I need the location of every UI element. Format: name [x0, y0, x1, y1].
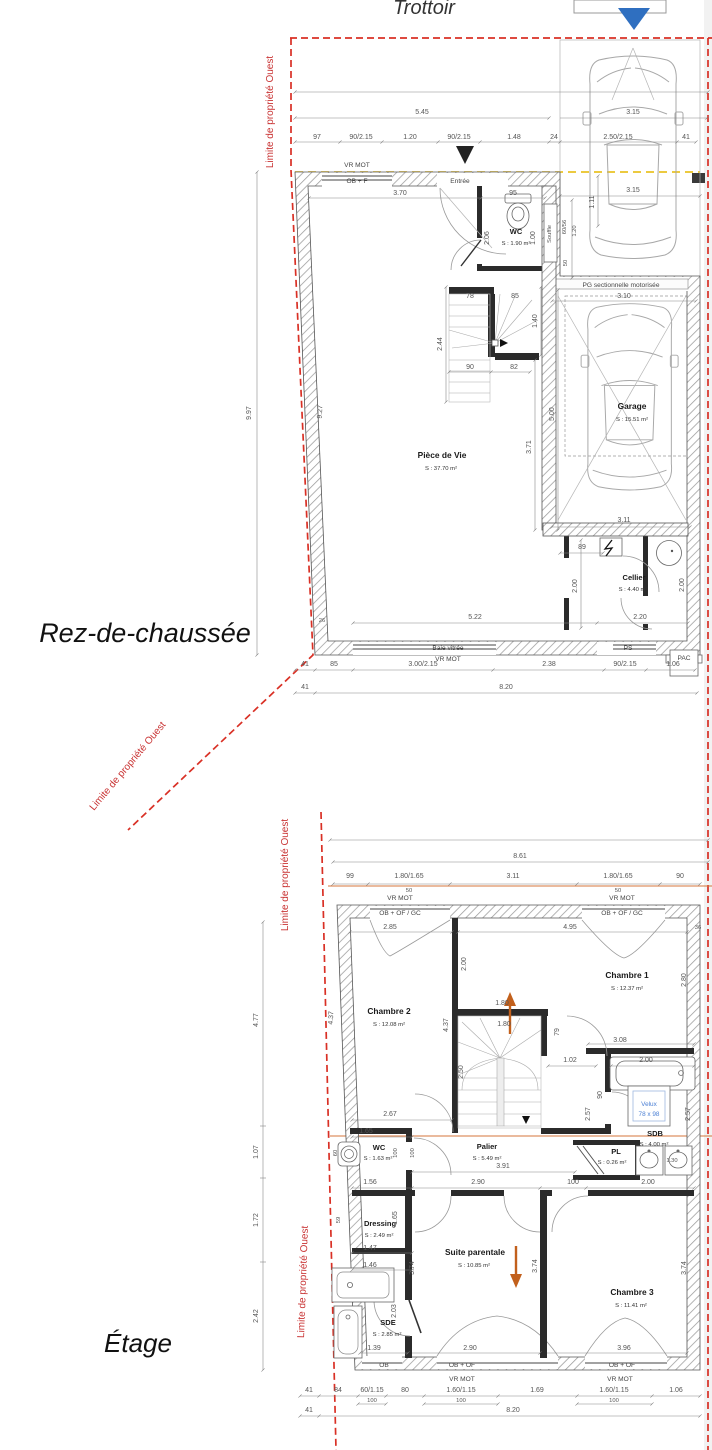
- entry-label: Entrée: [450, 178, 470, 185]
- dim-label: 4.95: [563, 924, 577, 931]
- dim-label: 2.00: [461, 957, 468, 971]
- room-name: WC: [373, 1143, 386, 1152]
- dim-label: 90/2.15: [447, 134, 470, 141]
- bay-window-label: Baie vitrée: [432, 645, 463, 652]
- dim-label: 85: [511, 293, 519, 300]
- dim-label: 3.15: [626, 187, 640, 194]
- velux-label: Velux: [641, 1101, 657, 1108]
- room-area: S : 2.85 m²: [373, 1332, 402, 1338]
- dim-label: 2.38: [542, 661, 556, 668]
- room-area: S : 12.08 m²: [373, 1022, 405, 1028]
- dim-label: 1.80: [497, 1021, 511, 1028]
- dim-label: 85: [330, 661, 338, 668]
- room-area: S : 4.40 m²: [619, 587, 648, 593]
- dim-label: 1.30: [666, 1158, 677, 1164]
- entrance-arrow-icon: [618, 8, 650, 30]
- dim-label: 9.97: [246, 406, 253, 420]
- dim-label: 60/1.15: [360, 1387, 383, 1394]
- dim-label: 5.22: [468, 614, 482, 621]
- dim-label: 2.00: [572, 579, 579, 593]
- dim-label: 1.56: [363, 1179, 377, 1186]
- dim-label: 2.44: [437, 337, 444, 351]
- floor-plan-document: Limite de propriété Ouest Limite de prop…: [0, 0, 712, 1450]
- dim-label: 90/2.15: [349, 134, 372, 141]
- shutter-label: VR MOT: [344, 162, 370, 169]
- room-name: PL: [611, 1147, 621, 1156]
- dim-label: 41: [301, 661, 309, 668]
- property-limit-label: Limite de propriété Ouest: [265, 56, 276, 169]
- window-label: OB + OF: [449, 1362, 475, 1369]
- dim-label: 41: [301, 684, 309, 691]
- dim-label: 1.02: [563, 1057, 577, 1064]
- dim-label: 3.74: [681, 1261, 688, 1275]
- dim-label: 89: [578, 544, 586, 551]
- dim-label: 60: [333, 1150, 339, 1156]
- room-area: S : 1.90 m²: [502, 241, 531, 247]
- property-limit-label: Limite de propriété Ouest: [280, 819, 291, 932]
- room-area: S : 5.49 m²: [473, 1156, 502, 1162]
- water-heater: [657, 541, 682, 566]
- dim-label: 2.42: [253, 1309, 260, 1323]
- dim-label: 97: [313, 134, 321, 141]
- dim-label: 3.91: [496, 1163, 510, 1170]
- entry-opening: [437, 173, 508, 187]
- sidewalk-label: Trottoir: [393, 0, 456, 19]
- room-name: Pièce de Vie: [418, 450, 467, 460]
- room-name: SDB: [647, 1129, 663, 1138]
- legend-box: [574, 0, 666, 13]
- dim-label: 41: [305, 1407, 313, 1414]
- dim-label: 1.72: [253, 1213, 260, 1227]
- room-name: Palier: [477, 1142, 498, 1151]
- room-name: Garage: [618, 401, 647, 411]
- room-area: S : 10.85 m²: [458, 1263, 490, 1269]
- dim-label: 100: [367, 1398, 377, 1404]
- utility-box: [692, 173, 705, 183]
- dim-label: 2.67: [383, 1111, 397, 1118]
- room-name: Chambre 3: [610, 1287, 654, 1297]
- dim-label: 3.11: [617, 517, 630, 524]
- dim-label: 4.77: [253, 1013, 260, 1027]
- door-direction-icon: [456, 146, 474, 164]
- dim-label: 3.71: [526, 440, 533, 454]
- dim-label: 1.80/1.65: [603, 873, 632, 880]
- dim-label: 82: [510, 364, 518, 371]
- service-door-opening: [597, 642, 613, 655]
- dim-label: 3.11: [506, 873, 519, 880]
- dim-label: 2.20: [633, 614, 647, 621]
- dim-label: 1.69: [530, 1387, 544, 1394]
- floor-title: Étage: [104, 1328, 172, 1358]
- dim-label: 2.57: [685, 1107, 692, 1121]
- dim-label: 5.45: [415, 109, 429, 116]
- stairs-down-arrow: [510, 1246, 522, 1288]
- dim-label: 2.00: [639, 1057, 653, 1064]
- dim-label: 1.47: [363, 1245, 377, 1252]
- dim-label: 4.37: [443, 1018, 450, 1032]
- dim-label: 100: [609, 1398, 619, 1404]
- dim-label: 90: [597, 1091, 604, 1099]
- dim-label: 84: [334, 1387, 342, 1394]
- dim-label: 59: [336, 1217, 342, 1223]
- window-label: OB: [379, 1362, 389, 1369]
- dim-label: 60/56: [562, 220, 568, 235]
- service-door-label: PS: [624, 645, 633, 652]
- dim-label: 1.60/1.15: [599, 1387, 628, 1394]
- garage-parking-zone: [565, 296, 688, 456]
- room-name: Cellier: [623, 573, 646, 582]
- driveway: [560, 40, 700, 278]
- dim-label: 95: [509, 190, 517, 197]
- dim-label: 8.61: [513, 853, 527, 860]
- dim-label: 1.80/1.65: [394, 873, 423, 880]
- dim-label: 8.20: [506, 1407, 520, 1414]
- dim-label: 2.85: [383, 924, 397, 931]
- dim-label: 1.07: [253, 1145, 260, 1159]
- dim-label: 90: [676, 873, 684, 880]
- dim-label: 8.20: [499, 684, 513, 691]
- dim-label: 1.60/1.15: [446, 1387, 475, 1394]
- property-limit-label: Limite de propriété Ouest: [88, 720, 169, 813]
- dim-label: 9.27: [317, 405, 325, 419]
- dim-label: 2.06: [484, 231, 491, 245]
- window-opening: [613, 642, 656, 655]
- room-area: S : 4.00 m²: [640, 1142, 669, 1148]
- dim-label: 1.40: [532, 314, 539, 328]
- room-area: S : 12.37 m²: [611, 986, 643, 992]
- dim-label: 2.57: [585, 1107, 592, 1121]
- dim-label: 2.80: [681, 973, 688, 987]
- dim-label: 1.80: [495, 1000, 509, 1007]
- dim-label: 80: [401, 1387, 409, 1394]
- dim-label: 2.00: [679, 578, 686, 592]
- dim-label: 2.50/2.15: [603, 134, 632, 141]
- shutter-label: VR MOT: [435, 656, 461, 663]
- room-area: S : 37.70 m²: [425, 466, 457, 472]
- dim-label: 1.48: [507, 134, 521, 141]
- window-label: OB + OF / GC: [379, 910, 421, 917]
- shutter-label: VR MOT: [609, 895, 635, 902]
- room-area: S : 2.49 m²: [365, 1233, 394, 1239]
- dim-label: 3.15: [626, 109, 640, 116]
- garage-rear-wall: [543, 523, 688, 536]
- floor-plan-drawing: Limite de propriété Ouest Limite de prop…: [0, 0, 712, 1450]
- dim-label: 78: [466, 293, 474, 300]
- dim-label: 3.08: [613, 1037, 627, 1044]
- dim-label: 1.11: [589, 195, 596, 208]
- dim-label: 41: [682, 134, 690, 141]
- room-name: SDE: [380, 1318, 395, 1327]
- property-limit-label: Limite de propriété Ouest: [296, 1225, 311, 1338]
- dim-label: 2.50: [458, 1065, 465, 1079]
- room-name: Chambre 2: [367, 1006, 411, 1016]
- dim-label: 1.65: [359, 1128, 373, 1135]
- dim-label: 100: [456, 1398, 466, 1404]
- dim-label: 1.20: [403, 134, 417, 141]
- dim-label: 3.10: [617, 293, 631, 300]
- dim-label: 3.00/2.15: [408, 661, 437, 668]
- dim-label: 1.20: [572, 225, 578, 236]
- shutter-label: VR MOT: [387, 895, 413, 902]
- dim-label: 50: [615, 888, 621, 894]
- room-area: S : 11.41 m²: [615, 1303, 647, 1309]
- dim-label: 90: [466, 364, 474, 371]
- dim-label: 90/2.15: [613, 661, 636, 668]
- dim-label: 26: [319, 618, 325, 624]
- window-label: OB + OF / GC: [601, 910, 643, 917]
- dim-label: 1.00: [530, 231, 537, 245]
- duct-label: Souffle: [547, 225, 553, 243]
- dim-label: 50: [563, 260, 569, 266]
- dim-label: 1.65: [392, 1211, 399, 1225]
- dim-label: 2.03: [391, 1304, 398, 1318]
- room-name: Chambre 1: [605, 970, 649, 980]
- staircase: [458, 1016, 541, 1128]
- dim-label: 50: [406, 888, 412, 894]
- bay-window-opening: [353, 642, 496, 655]
- dim-label: 99: [346, 873, 354, 880]
- dim-label: 3.74: [409, 1261, 416, 1275]
- dim-label: 1.46: [363, 1262, 377, 1269]
- dim-label: 2.90: [471, 1179, 485, 1186]
- room-name: Suite parentale: [445, 1247, 505, 1257]
- dim-label: 1.06: [666, 661, 680, 668]
- dim-label: 100: [393, 1148, 399, 1158]
- room-name: WC: [510, 227, 523, 236]
- dim-label: 100: [410, 1148, 416, 1158]
- dim-label: 3.74: [532, 1259, 539, 1273]
- dim-label: 24: [550, 134, 558, 141]
- dim-label: 41: [305, 1387, 313, 1394]
- dim-label: 3.96: [617, 1345, 631, 1352]
- dim-label: 3.70: [393, 190, 407, 197]
- dim-label: 2.90: [463, 1345, 477, 1352]
- dim-label: 1.39: [367, 1345, 381, 1352]
- property-boundary: [128, 38, 712, 1450]
- dim-label: 4.37: [328, 1011, 336, 1025]
- dim-label: 1.06: [669, 1387, 683, 1394]
- dim-label: 36: [695, 925, 701, 931]
- window-label: OB + OF: [609, 1362, 635, 1369]
- garage-door-label: PG sectionnelle motorisée: [583, 282, 660, 289]
- room-area: S : 15.51 m²: [616, 417, 648, 423]
- dim-label: 5.00: [549, 407, 556, 421]
- shutter-label: VR MOT: [607, 1376, 633, 1383]
- room-area: S : 0.26 m²: [598, 1160, 627, 1166]
- floor-title: Rez-de-chaussée: [39, 618, 251, 648]
- dim-label: 2.00: [641, 1179, 655, 1186]
- velux-size-label: 78 x 98: [639, 1111, 660, 1118]
- window-label: OB + F: [346, 178, 367, 185]
- dim-label: 79: [554, 1028, 561, 1036]
- dim-label: 100: [567, 1179, 579, 1186]
- room-area: S : 1.63 m²: [364, 1156, 393, 1162]
- shutter-label: VR MOT: [449, 1376, 475, 1383]
